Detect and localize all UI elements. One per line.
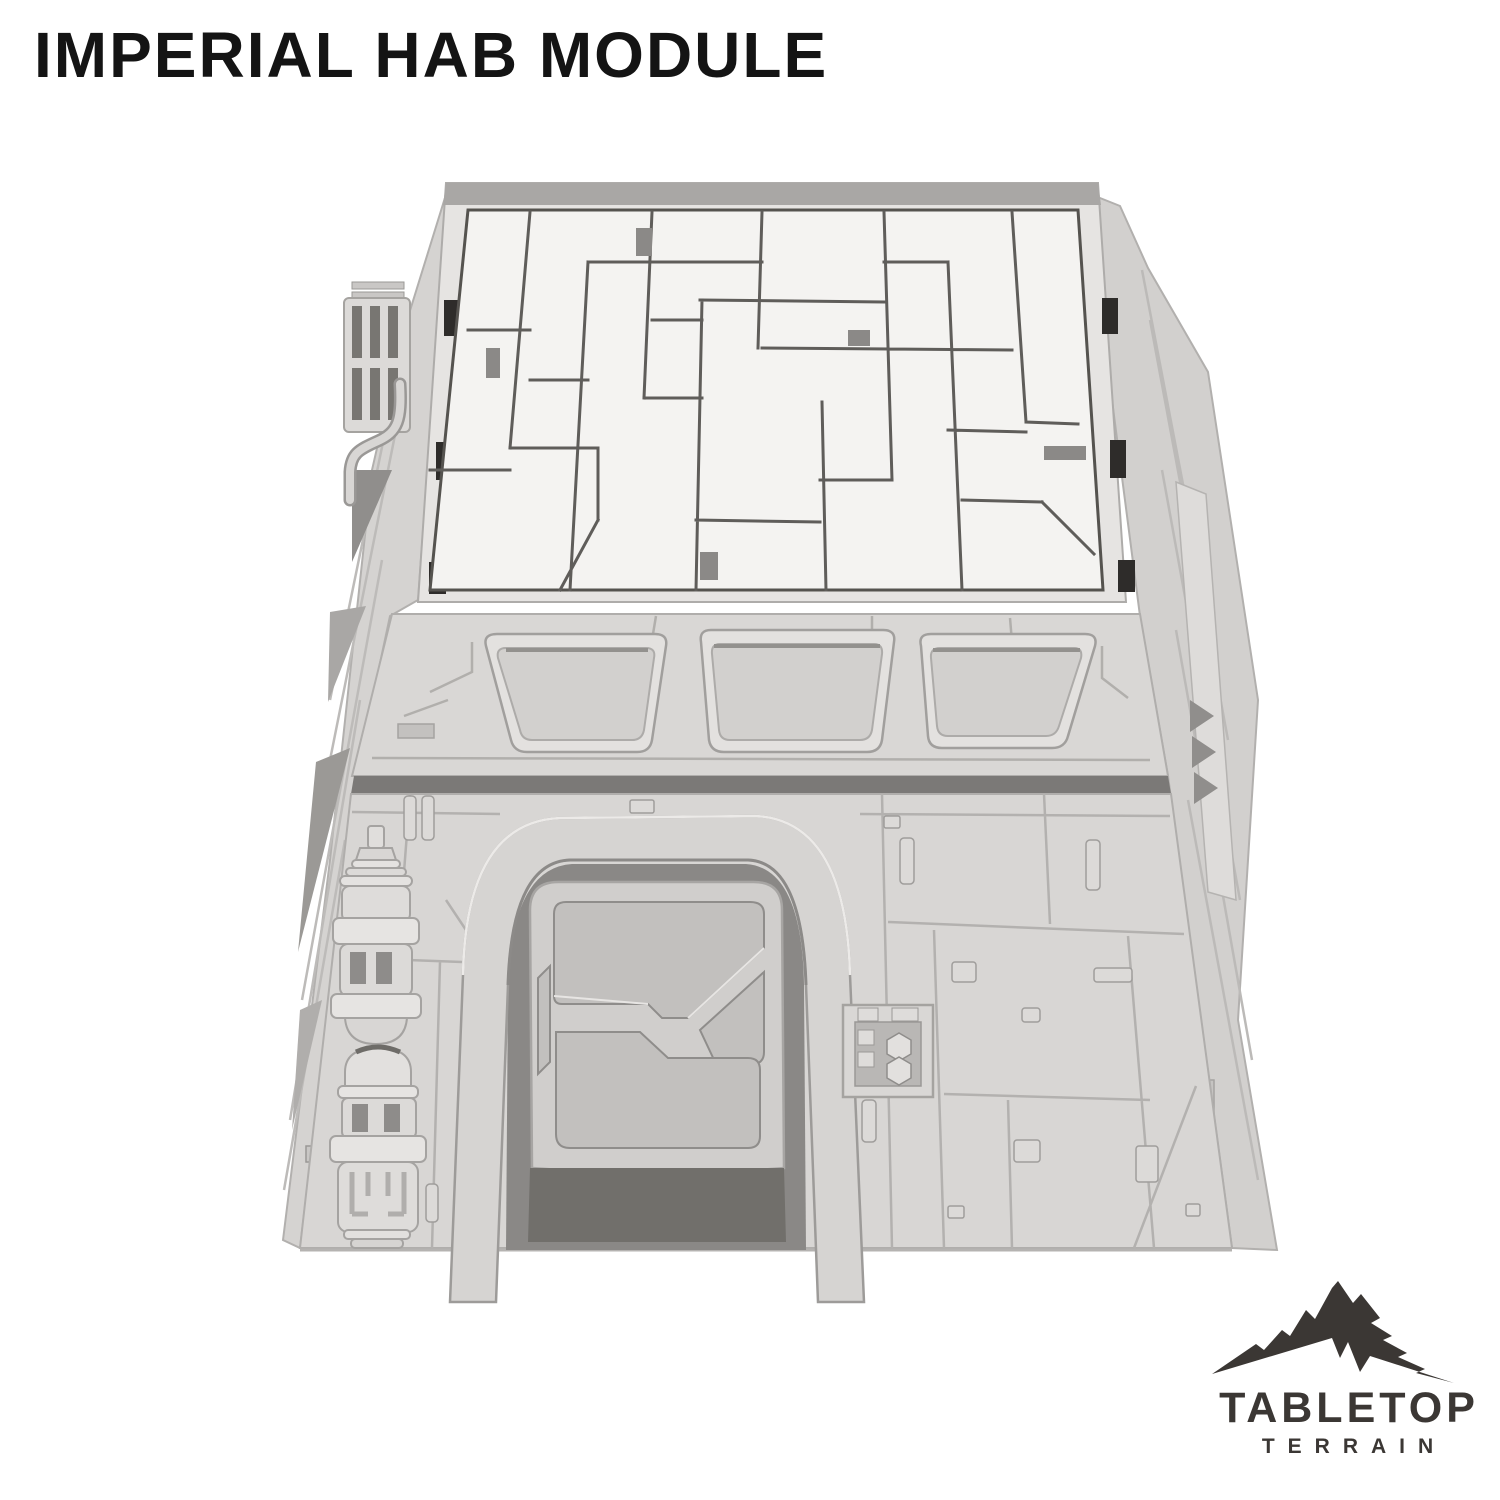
page: IMPERIAL HAB MODULE: [0, 0, 1500, 1500]
door-slab: [530, 882, 784, 1173]
hex-button-bottom: [887, 1057, 911, 1085]
logo-brand-text: TABLETOP: [1203, 1386, 1495, 1431]
logo-subbrand-text: TERRAIN: [1213, 1435, 1495, 1459]
band-crevice: [351, 776, 1171, 794]
door-assembly: [450, 816, 864, 1302]
brand-logo: TABLETOP TERRAIN: [1203, 1278, 1495, 1459]
product-render: [0, 0, 1500, 1500]
door-slot-left: [538, 966, 550, 1074]
hex-control-box: [843, 1005, 933, 1097]
window-2: [701, 630, 895, 752]
mountain-icon: [1210, 1278, 1488, 1386]
window-3: [920, 634, 1095, 748]
door-threshold: [528, 1168, 786, 1242]
roof-top-panels: [430, 210, 1103, 590]
window-band: [352, 614, 1168, 776]
tank-lower: [330, 1047, 426, 1248]
window-1: [485, 634, 666, 752]
